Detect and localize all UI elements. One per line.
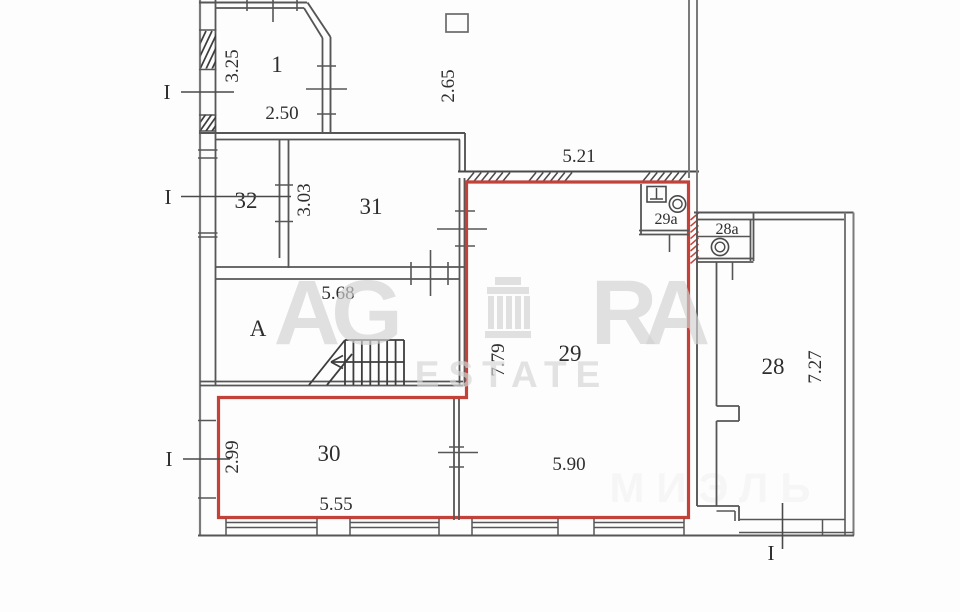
svg-text:МИЭЛЬ: МИЭЛЬ [609, 464, 822, 511]
svg-text:I: I [165, 185, 172, 209]
svg-text:7.27: 7.27 [805, 350, 826, 383]
svg-text:30: 30 [318, 441, 341, 466]
svg-text:29a: 29a [654, 211, 677, 228]
svg-text:28: 28 [762, 354, 785, 379]
svg-text:1: 1 [271, 52, 283, 77]
svg-text:5.90: 5.90 [552, 454, 585, 475]
svg-text:2.50: 2.50 [265, 103, 298, 124]
svg-text:ESTATE: ESTATE [415, 354, 609, 395]
svg-text:I: I [166, 447, 173, 471]
svg-text:3.25: 3.25 [222, 49, 243, 82]
svg-text:31: 31 [360, 194, 383, 219]
svg-text:32: 32 [235, 188, 258, 213]
svg-text:A: A [250, 316, 267, 341]
svg-text:5.21: 5.21 [562, 146, 595, 167]
svg-text:3.03: 3.03 [294, 183, 315, 216]
svg-text:2.99: 2.99 [222, 440, 243, 473]
svg-text:A: A [644, 262, 710, 364]
svg-text:G: G [331, 262, 403, 364]
svg-text:28a: 28a [715, 221, 738, 238]
svg-text:I: I [768, 541, 775, 565]
svg-text:2.65: 2.65 [438, 69, 459, 102]
svg-text:I: I [164, 80, 171, 104]
svg-text:5.55: 5.55 [319, 494, 352, 515]
